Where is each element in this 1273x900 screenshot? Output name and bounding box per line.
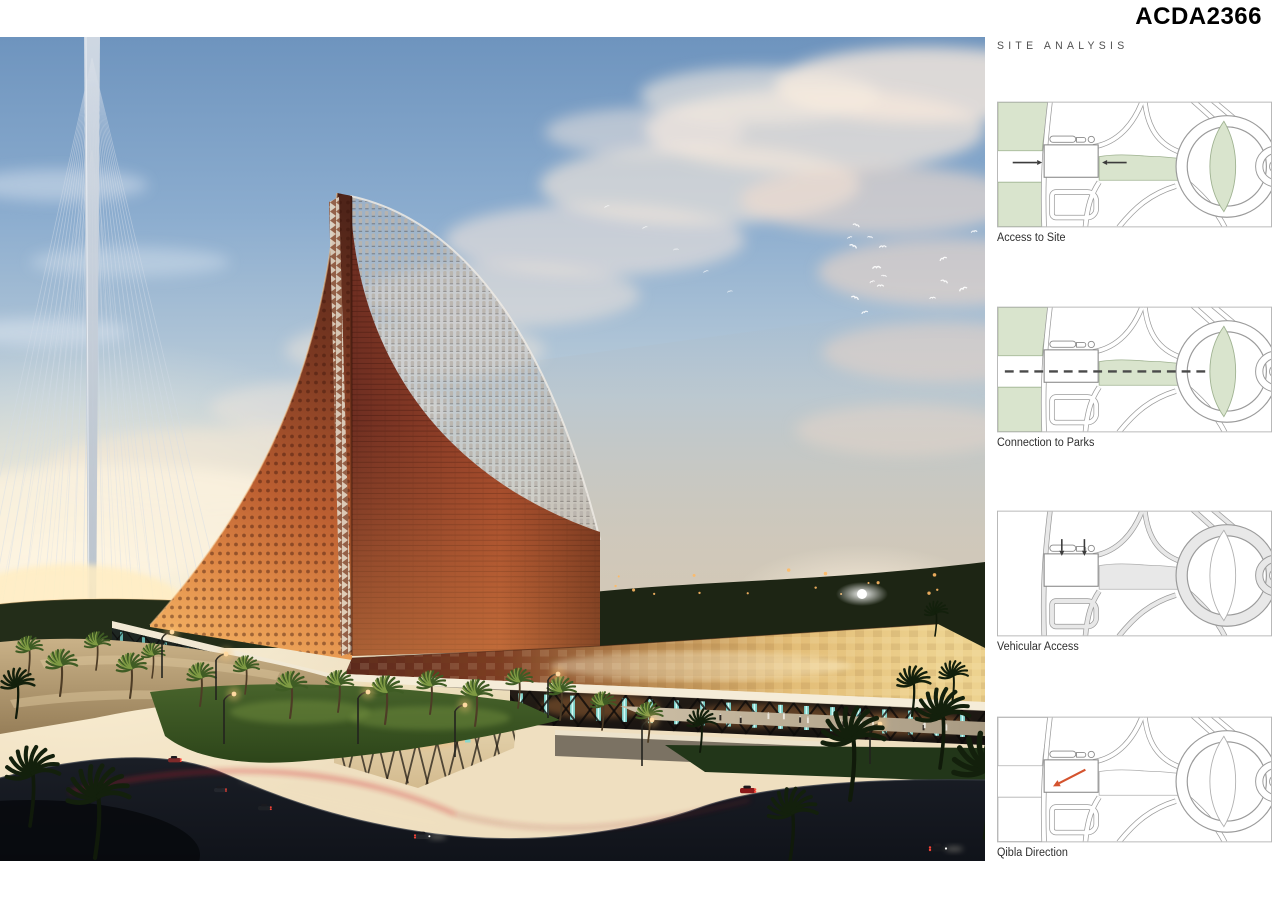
presentation-board: ACDA2366 bbox=[0, 0, 1273, 900]
board-id: ACDA2366 bbox=[1135, 3, 1262, 31]
bright-light bbox=[857, 589, 867, 599]
lawn-light-1 bbox=[230, 700, 370, 724]
diagram-label: Access to Site bbox=[997, 232, 1256, 244]
site-map-access bbox=[997, 101, 1272, 228]
site-map-vehicular bbox=[997, 510, 1272, 637]
diagram-label: Vehicular Access bbox=[997, 641, 1256, 653]
section-title: SITE ANALYSIS bbox=[997, 40, 1128, 52]
diagram-label: Connection to Parks bbox=[997, 437, 1256, 449]
hero-render bbox=[0, 37, 985, 861]
diagram-label: Qibla Direction bbox=[997, 847, 1256, 859]
diagram-access-to-site: Access to Site bbox=[997, 101, 1272, 244]
site-map-svg bbox=[997, 510, 1272, 637]
diagram-qibla-direction: Qibla Direction bbox=[997, 716, 1272, 859]
diagram-connection-to-parks: Connection to Parks bbox=[997, 306, 1272, 449]
site-map-parks bbox=[997, 306, 1272, 433]
site-map-svg bbox=[997, 716, 1272, 843]
roof-specular bbox=[550, 652, 850, 680]
diagram-vehicular-access: Vehicular Access bbox=[997, 510, 1272, 653]
site-map-svg bbox=[997, 306, 1272, 433]
site-map-svg bbox=[997, 101, 1272, 228]
site-map-qibla bbox=[997, 716, 1272, 843]
